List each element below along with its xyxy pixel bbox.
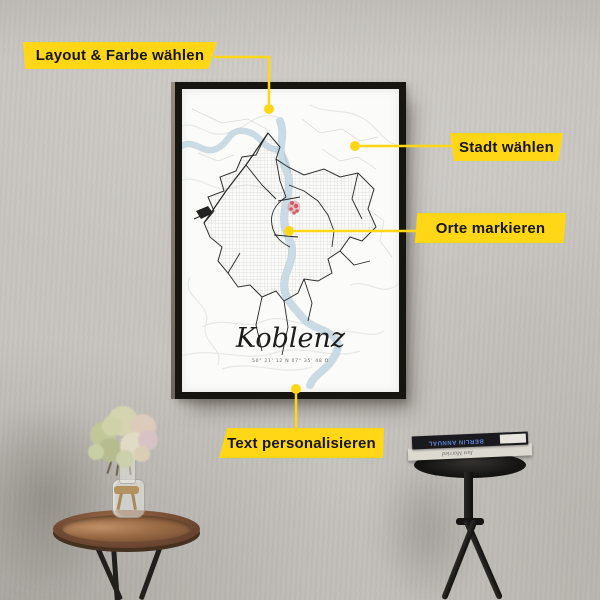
stool-column [464,472,473,524]
poster-frame: Koblenz 50° 21' 12 N 07° 35' 48 O [175,82,406,399]
book-spine-text: Just Married [442,449,473,456]
callout-label: Text personalisieren [227,436,376,451]
map-poster: Koblenz 50° 21' 12 N 07° 35' 48 O [182,89,399,392]
scene: Koblenz 50° 21' 12 N 07° 35' 48 O Just M… [0,0,600,600]
poster-title: Koblenz [235,323,346,354]
callout-label: Layout & Farbe wählen [36,48,204,63]
city-map: Koblenz 50° 21' 12 N 07° 35' 48 O [182,89,399,392]
callout-label: Orte markieren [436,221,546,236]
side-table-tray [62,515,191,542]
callout-stadt: Stadt wählen [450,133,563,161]
callout-text: Text personalisieren [219,428,384,458]
glass-vase [112,479,145,518]
poster-coordinates: 50° 21' 12 N 07° 35' 48 O [252,358,329,364]
dried-flowers [88,404,162,478]
callout-layout-farbe: Layout & Farbe wählen [23,42,217,69]
book-pages-edge [500,434,526,444]
book-spine-text: BERLIN ANNUAL [428,437,484,445]
callout-label: Stadt wählen [459,140,554,155]
callout-orte: Orte markieren [415,213,566,243]
twine-bow [114,486,139,494]
